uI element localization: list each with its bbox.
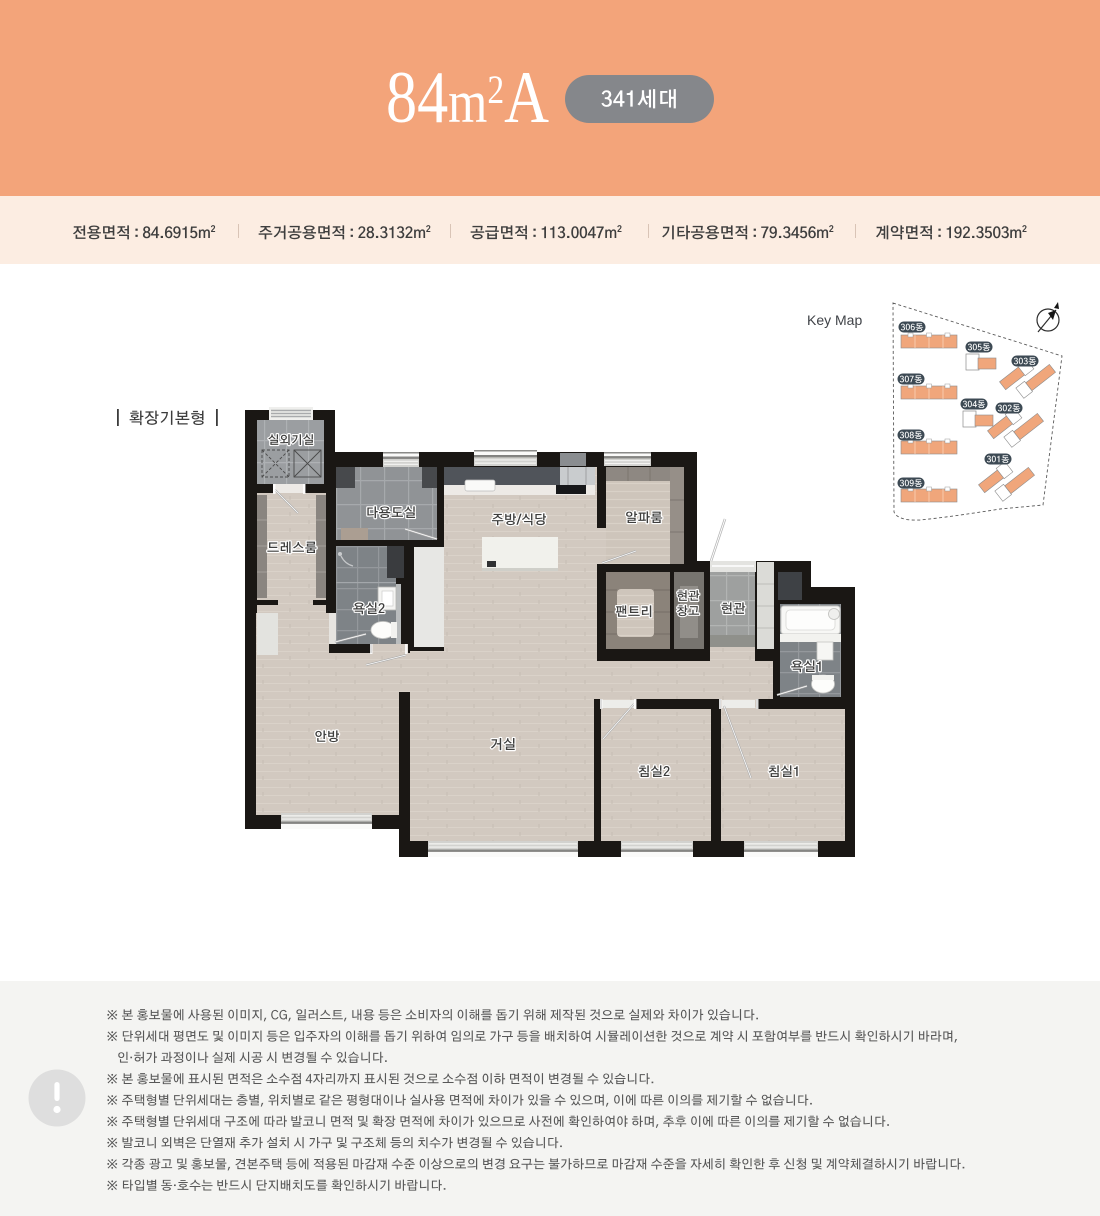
svg-text:84m2A: 84m2A (386, 56, 549, 138)
svg-text:Key Map: Key Map (807, 312, 862, 328)
